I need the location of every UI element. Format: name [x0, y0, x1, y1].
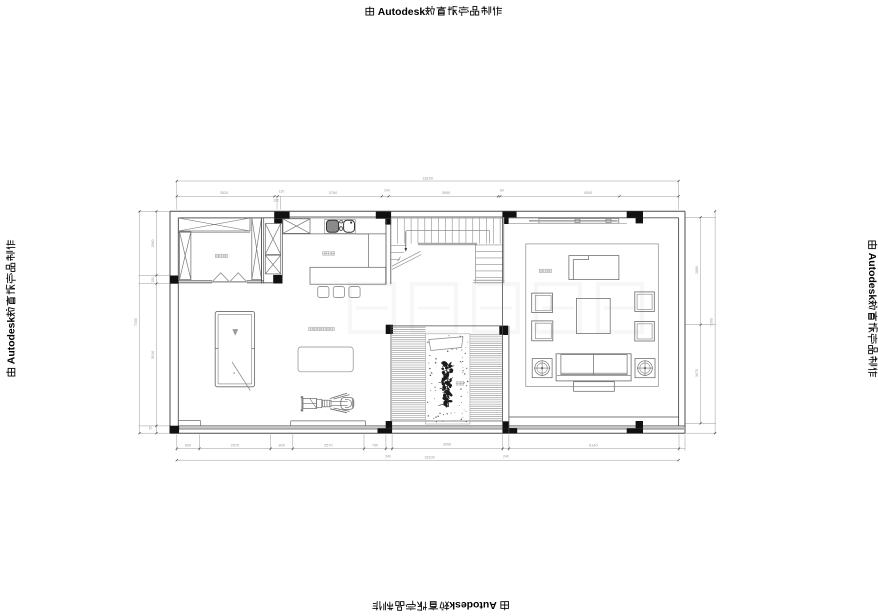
svg-text:Autodesk: Autodesk	[7, 317, 18, 365]
svg-text:18100: 18100	[422, 176, 433, 180]
svg-text:3950: 3950	[442, 191, 450, 195]
svg-text:240: 240	[385, 455, 391, 459]
svg-text:240: 240	[384, 189, 390, 193]
svg-text:800: 800	[185, 443, 191, 447]
svg-text:120: 120	[273, 199, 279, 203]
svg-text:2060: 2060	[151, 240, 155, 248]
svg-text:7350: 7350	[134, 318, 138, 326]
svg-text:800: 800	[279, 443, 285, 447]
svg-text:2570: 2570	[324, 443, 332, 447]
svg-text:5010: 5010	[151, 351, 155, 359]
svg-text:Autodesk: Autodesk	[866, 253, 877, 301]
svg-text:3950: 3950	[443, 442, 451, 446]
svg-text:6140: 6140	[589, 443, 597, 447]
svg-text:7350: 7350	[710, 318, 714, 326]
svg-text:3670: 3670	[695, 369, 699, 377]
svg-text:18100: 18100	[424, 456, 435, 460]
svg-text:330: 330	[151, 277, 155, 283]
svg-text:4300: 4300	[584, 191, 592, 195]
svg-text:2880: 2880	[695, 266, 699, 274]
svg-text:Autodesk: Autodesk	[449, 599, 497, 610]
svg-text:120: 120	[279, 190, 285, 194]
svg-text:2570: 2570	[231, 443, 239, 447]
svg-text:80: 80	[500, 189, 504, 193]
svg-text:3520: 3520	[220, 191, 228, 195]
svg-text:Autodesk: Autodesk	[378, 7, 426, 18]
svg-text:790: 790	[372, 443, 378, 447]
svg-text:50: 50	[149, 426, 153, 430]
svg-text:240: 240	[503, 455, 509, 459]
svg-text:3760: 3760	[329, 191, 337, 195]
